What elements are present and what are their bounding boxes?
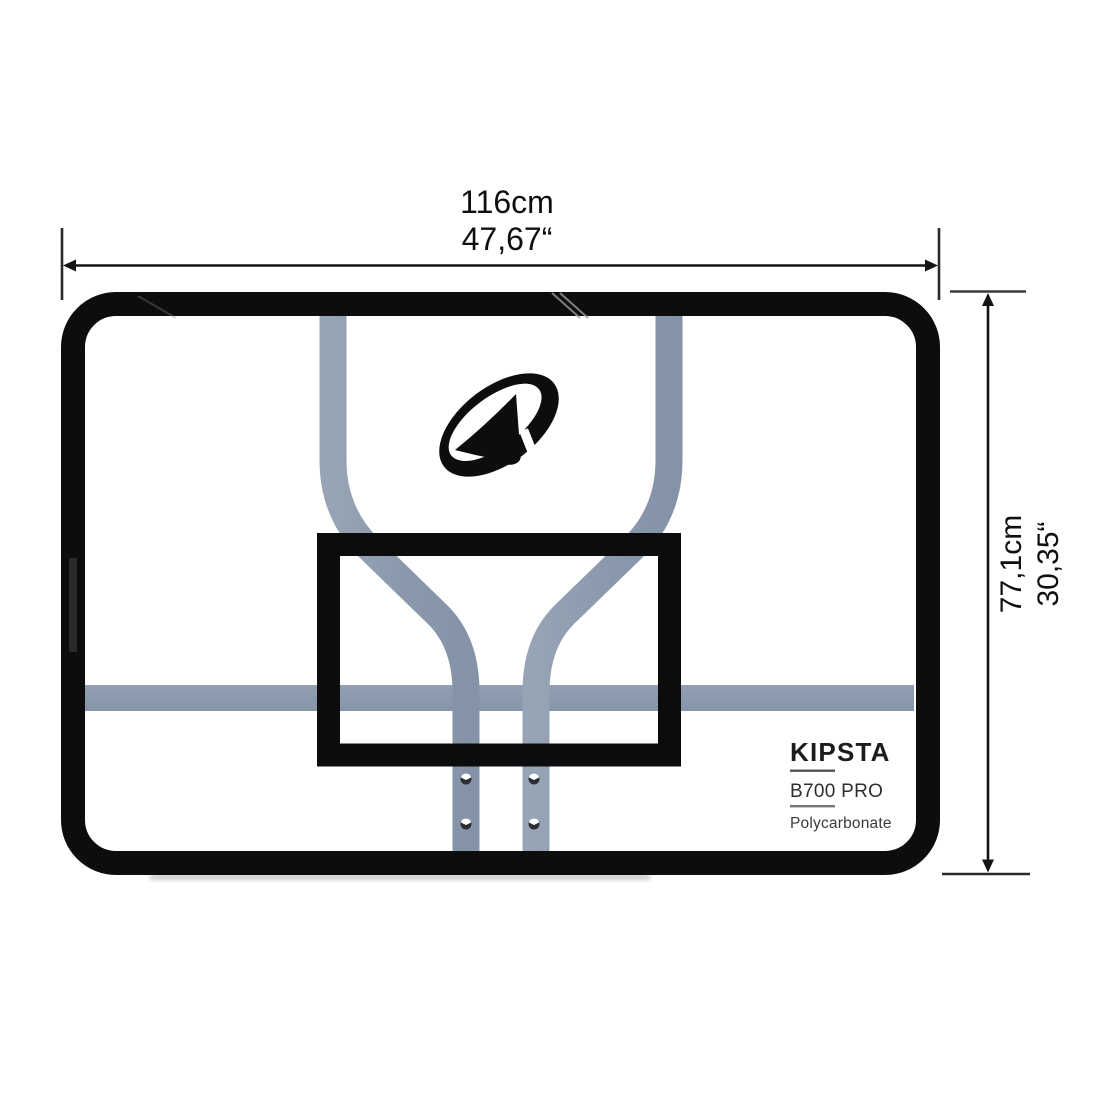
svg-text:30,35“: 30,35“ [1032,521,1065,606]
svg-text:KIPSTA: KIPSTA [790,737,891,767]
svg-text:116cm: 116cm [460,184,554,220]
svg-text:77,1cm: 77,1cm [995,515,1028,613]
svg-text:47,67“: 47,67“ [462,221,553,257]
svg-text:Polycarbonate: Polycarbonate [790,815,892,832]
svg-text:B700 PRO: B700 PRO [790,781,883,802]
